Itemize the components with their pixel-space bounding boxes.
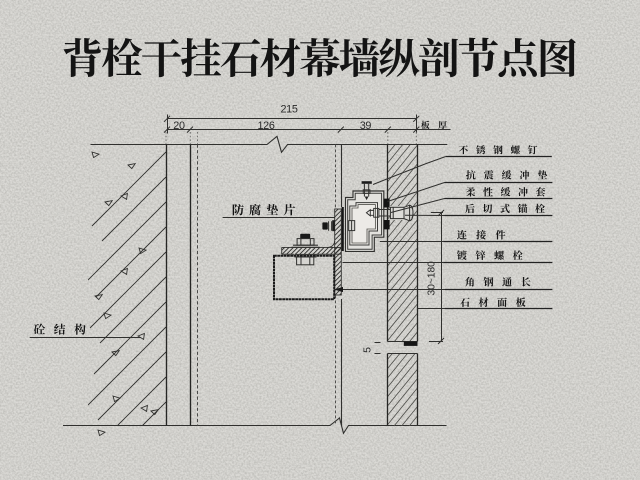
svg-text:215: 215 — [280, 104, 297, 116]
svg-text:20: 20 — [173, 120, 185, 132]
svg-text:30~180: 30~180 — [426, 261, 437, 296]
svg-text:39: 39 — [360, 120, 372, 132]
svg-text:126: 126 — [257, 120, 274, 132]
svg-text:5: 5 — [362, 347, 374, 353]
